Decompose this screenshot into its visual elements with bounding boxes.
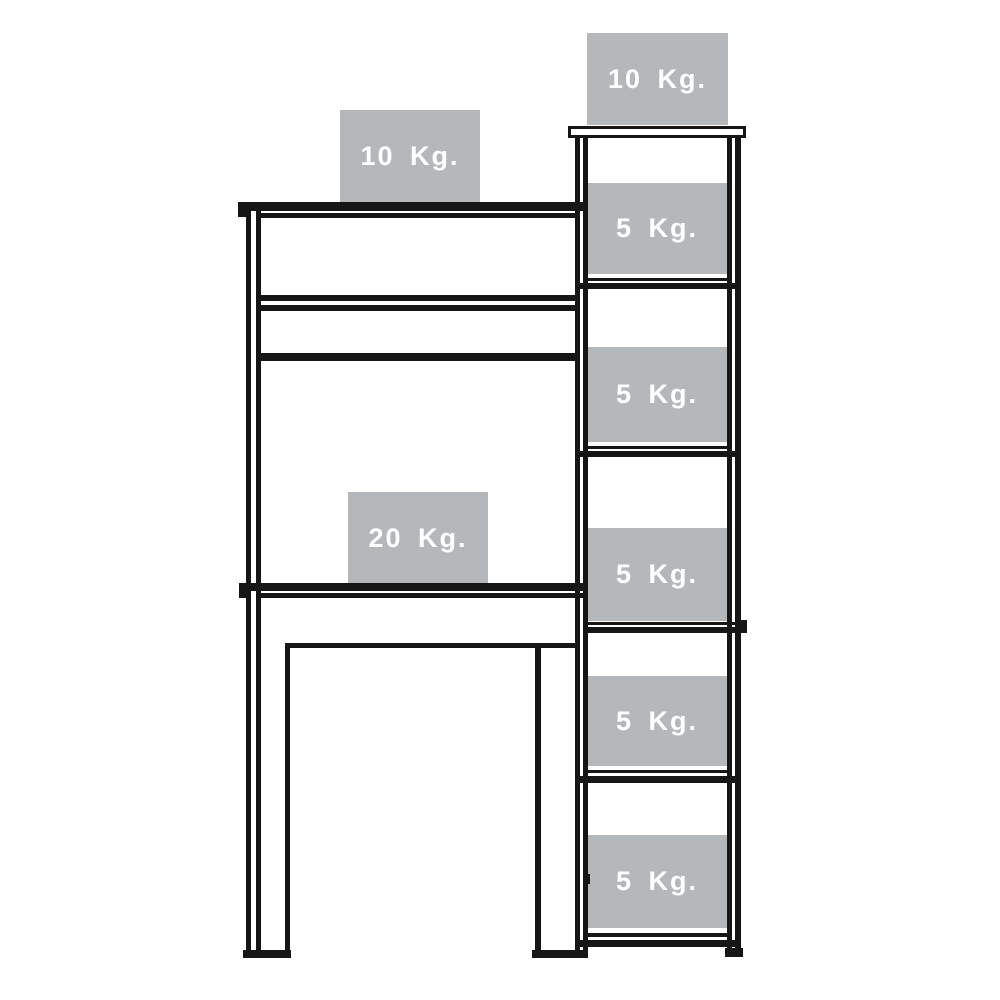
weight-label-text: 10 Kg.: [360, 143, 459, 170]
desk-left-leg-foot: [243, 950, 291, 958]
weight-label-shelf-4: 5 Kg.: [587, 676, 727, 766]
shelf-5-top-line: [586, 933, 729, 937]
shelf-3-top-line: [584, 622, 741, 625]
desk-side-panel-inner-line: [256, 209, 261, 951]
furniture-weight-diagram: 10 Kg. 10 Kg. 20 Kg. 5 Kg. 5 Kg. 5 Kg. 5…: [0, 0, 1000, 1000]
shelf-left-post-inner-line: [583, 136, 588, 951]
weight-label-text: 5 Kg.: [616, 215, 698, 242]
desk-right-leg-foot: [532, 950, 588, 958]
desk-right-leg-left-line: [535, 643, 541, 951]
weight-label-text: 5 Kg.: [616, 868, 698, 895]
desk-left-leg-inner-line: [285, 643, 290, 951]
shelf-right-post-inner-line: [727, 136, 732, 951]
shelf-4-bottom-line: [580, 776, 738, 783]
shelf-3-bottom-line: [584, 627, 747, 633]
desk-apron-line: [285, 643, 575, 648]
desktop-top-line: [239, 583, 583, 591]
desk-hutch-top-board-line: [238, 202, 583, 211]
weight-label-text: 20 Kg.: [368, 525, 467, 552]
shelf-1-top-line: [586, 278, 729, 281]
shelf-5-bottom-line: [580, 940, 738, 947]
desk-side-panel-outer-line: [246, 209, 251, 951]
shelf-4-top-line: [586, 770, 729, 773]
shelf-right-post-foot: [725, 948, 743, 957]
weight-label-text: 5 Kg.: [616, 381, 698, 408]
shelf-unit-top-cap: [568, 126, 746, 138]
shelf-pin-tick: [584, 874, 590, 884]
desk-hutch-shelf-top-line: [259, 295, 575, 301]
desktop-bottom-line: [259, 593, 583, 598]
weight-label-text: 10 Kg.: [608, 66, 707, 93]
weight-label-desk-hutch-top: 10 Kg.: [340, 110, 480, 202]
weight-label-text: 5 Kg.: [616, 708, 698, 735]
desk-hutch-top-board-underline: [259, 213, 575, 218]
desk-hutch-rail-line: [259, 353, 575, 361]
shelf-left-post-outer-line: [575, 136, 580, 951]
weight-label-shelf-3: 5 Kg.: [587, 528, 727, 621]
weight-label-shelf-unit-top: 10 Kg.: [587, 33, 728, 125]
weight-label-text: 5 Kg.: [616, 561, 698, 588]
shelf-3-right-tab: [737, 620, 747, 633]
weight-label-shelf-1: 5 Kg.: [587, 183, 727, 274]
desktop-left-cap: [239, 583, 250, 598]
weight-label-shelf-5: 5 Kg.: [587, 835, 727, 928]
weight-label-desktop: 20 Kg.: [348, 492, 488, 584]
desk-hutch-shelf-bottom-line: [259, 305, 575, 311]
weight-label-shelf-2: 5 Kg.: [587, 347, 727, 442]
shelf-2-top-line: [586, 446, 729, 449]
shelf-2-bottom-line: [580, 451, 738, 457]
shelf-right-post-outer-line: [735, 136, 741, 951]
shelf-1-bottom-line: [580, 283, 738, 289]
